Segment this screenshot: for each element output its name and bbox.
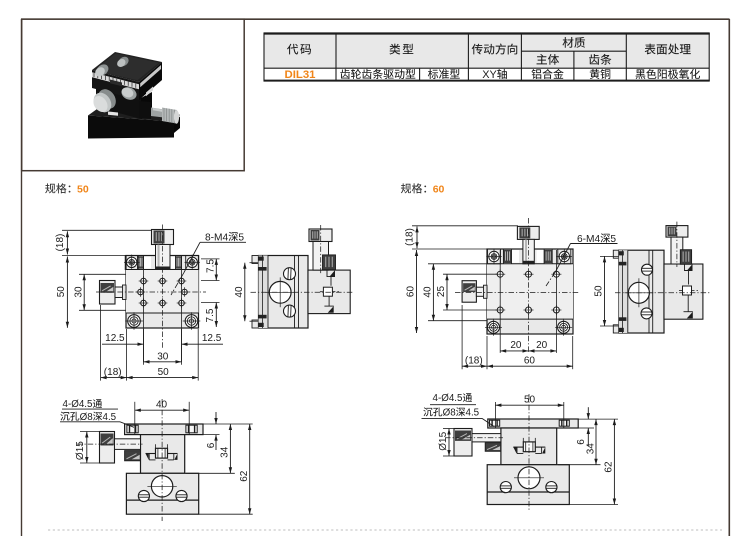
svg-text:12.5: 12.5 xyxy=(105,333,125,344)
svg-text:7.5: 7.5 xyxy=(205,308,216,322)
svg-text:60: 60 xyxy=(524,355,536,366)
svg-text:50: 50 xyxy=(77,184,89,196)
svg-text:4-Ø4.5: 4-Ø4.5 xyxy=(63,399,94,410)
svg-text:4-Ø4.5: 4-Ø4.5 xyxy=(433,393,464,404)
svg-text:Ø15: Ø15 xyxy=(75,441,86,460)
svg-text:40: 40 xyxy=(423,286,434,298)
svg-text:(18): (18) xyxy=(104,367,122,378)
svg-text:60: 60 xyxy=(433,184,445,196)
svg-text:62: 62 xyxy=(239,470,250,482)
svg-text:25: 25 xyxy=(436,286,447,298)
svg-text:12.5: 12.5 xyxy=(202,333,222,344)
svg-text:50: 50 xyxy=(593,285,604,297)
svg-text:4.5: 4.5 xyxy=(466,408,480,419)
svg-text:XY: XY xyxy=(482,69,497,81)
svg-text:8-M4: 8-M4 xyxy=(205,232,229,243)
svg-text:50: 50 xyxy=(158,367,170,378)
svg-text:5: 5 xyxy=(238,232,244,243)
svg-text:50: 50 xyxy=(56,286,67,298)
svg-text:40: 40 xyxy=(234,286,245,298)
svg-text:30: 30 xyxy=(73,286,84,298)
svg-text:62: 62 xyxy=(603,461,614,473)
svg-text:Ø8: Ø8 xyxy=(80,412,94,423)
svg-text:(18): (18) xyxy=(465,355,483,366)
svg-text:40: 40 xyxy=(156,400,168,411)
svg-text:(18): (18) xyxy=(55,234,66,252)
svg-text:7.5: 7.5 xyxy=(205,259,216,273)
svg-text:20: 20 xyxy=(510,340,522,351)
svg-text:34: 34 xyxy=(585,443,596,455)
svg-text:30: 30 xyxy=(157,351,169,362)
svg-text:60: 60 xyxy=(405,286,416,298)
svg-text:20: 20 xyxy=(536,340,548,351)
svg-text:(18): (18) xyxy=(404,228,415,246)
svg-text:50: 50 xyxy=(524,395,536,406)
svg-text:Ø8: Ø8 xyxy=(443,408,457,419)
svg-text:DIL31: DIL31 xyxy=(284,69,316,81)
svg-text:34: 34 xyxy=(220,446,231,458)
svg-text:4.5: 4.5 xyxy=(103,412,117,423)
svg-text:Ø15: Ø15 xyxy=(438,431,449,450)
svg-text:6: 6 xyxy=(206,442,217,448)
